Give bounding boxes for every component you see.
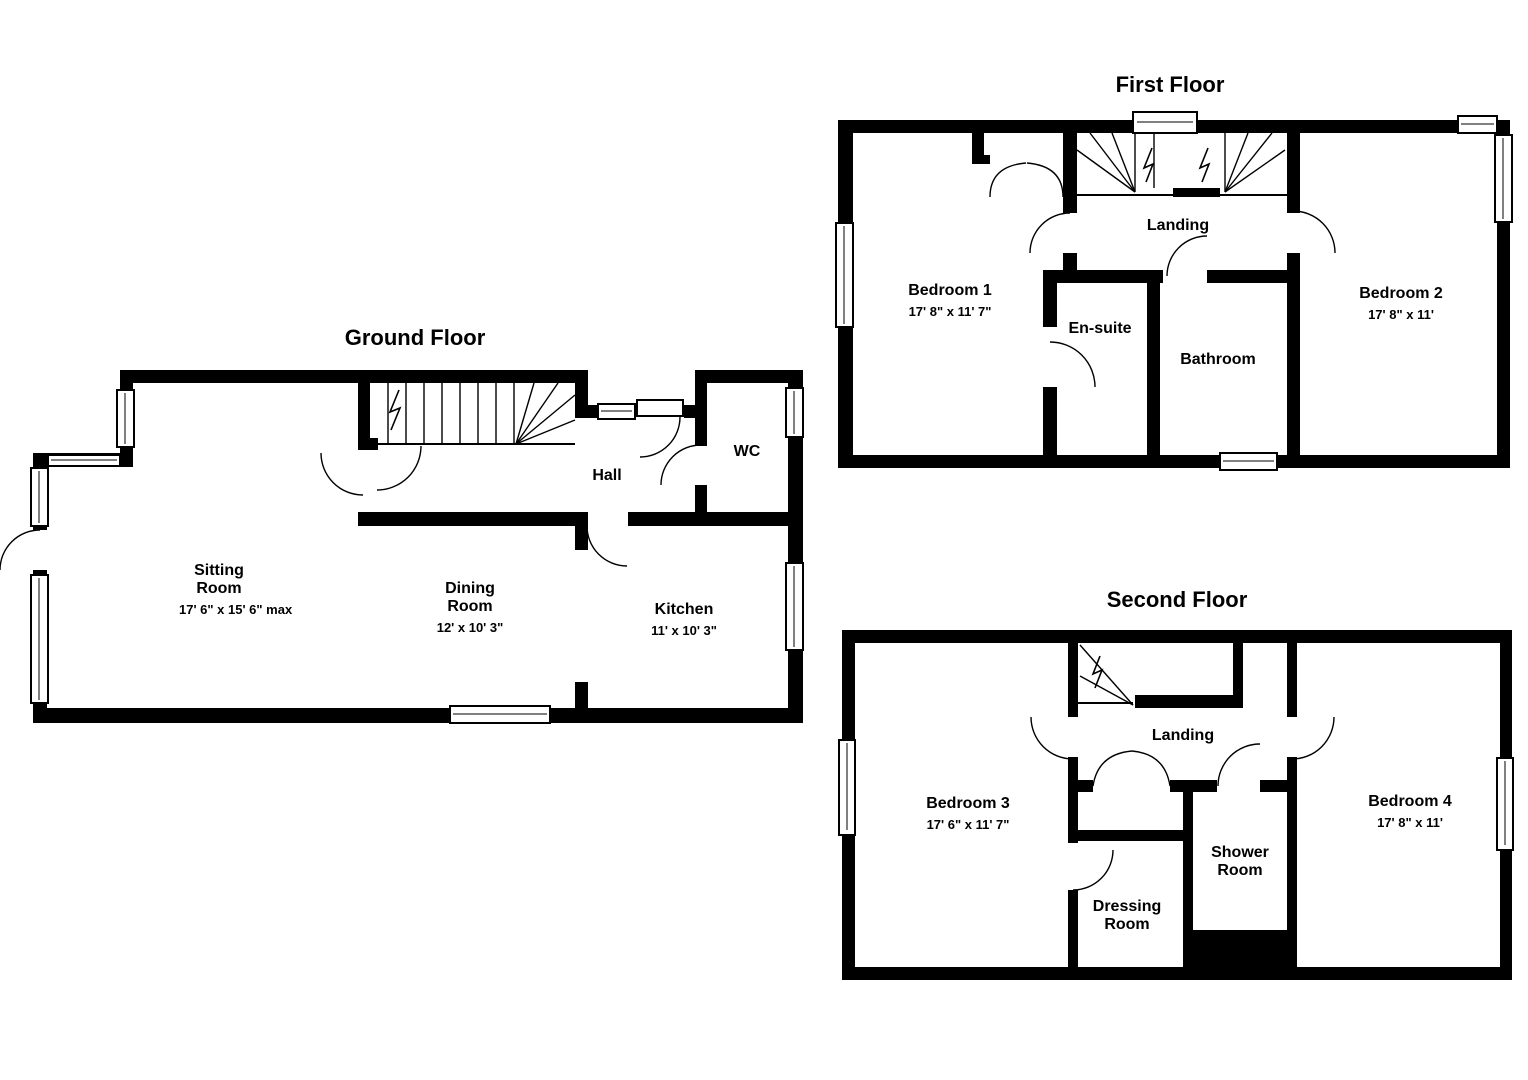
chimney-block: [1190, 930, 1297, 980]
window-icon: [31, 575, 48, 703]
door-arc-garden: [0, 530, 40, 570]
door-arc-kitchen: [587, 526, 627, 566]
room-label-shower-room: Shower Room: [1200, 844, 1280, 880]
floorplan-graphics: [0, 0, 1528, 1080]
ground-walls: [33, 370, 803, 723]
front-door-leaf: [637, 400, 683, 416]
window-icon: [1495, 135, 1512, 222]
room-label-sitting-room: Sitting Room 17' 6" x 15' 6" max: [179, 562, 259, 617]
room-label-bedroom-3: Bedroom 3 17' 6" x 11' 7": [926, 795, 1010, 832]
room-label-bedroom-2: Bedroom 2 17' 8" x 11': [1359, 285, 1443, 322]
door-arc-sitting-room: [321, 453, 363, 495]
stair-direction-arrow: [1200, 148, 1209, 182]
door-arc-dressing-room: [1073, 850, 1113, 890]
window-icon: [1458, 116, 1497, 133]
door-arc-closet-right: [1027, 163, 1063, 197]
door-arc-shower-room: [1218, 744, 1260, 786]
window-icon: [48, 455, 120, 466]
second-floor-title: Second Floor: [1107, 587, 1248, 613]
room-label-en-suite: En-suite: [1068, 320, 1131, 338]
window-icon: [836, 223, 853, 327]
ground-doors: [0, 400, 701, 570]
second-stairs: [1078, 645, 1133, 705]
window-icon: [450, 706, 550, 723]
door-arc-closet-left: [990, 163, 1026, 197]
room-label-bedroom-4: Bedroom 4 17' 8" x 11': [1368, 793, 1452, 830]
door-arc-wc: [661, 445, 701, 485]
room-label-dining-room: Dining Room 12' x 10' 3": [430, 580, 510, 635]
window-icon: [1220, 453, 1277, 470]
window-icon: [117, 390, 134, 447]
door-arc-bedroom-3: [1031, 717, 1073, 759]
ground-floor-title: Ground Floor: [345, 325, 486, 351]
room-label-wc: WC: [734, 443, 761, 461]
door-arc-front-door: [640, 417, 680, 457]
room-label-landing-second: Landing: [1152, 727, 1214, 745]
room-label-hall: Hall: [592, 467, 621, 485]
door-arc-bedroom-4: [1292, 717, 1334, 759]
room-label-bathroom: Bathroom: [1180, 351, 1256, 369]
ground-windows: [31, 388, 803, 723]
door-arc-bedroom-1: [1030, 213, 1070, 253]
window-icon: [786, 563, 803, 650]
first-stairs: [1077, 133, 1287, 195]
room-label-landing-first: Landing: [1147, 217, 1209, 235]
first-floor-title: First Floor: [1116, 72, 1225, 98]
window-icon: [1133, 112, 1197, 133]
room-label-kitchen: Kitchen 11' x 10' 3": [651, 601, 717, 638]
ground-floor-plan: [0, 370, 803, 723]
stair-direction-arrow: [1144, 148, 1153, 182]
ground-stairs: [370, 383, 575, 444]
room-label-bedroom-1: Bedroom 1 17' 8" x 11' 7": [908, 282, 992, 319]
door-arc-stairs: [377, 446, 421, 490]
stair-direction-arrow: [390, 390, 400, 430]
window-icon: [786, 388, 803, 437]
room-label-dressing-room: Dressing Room: [1077, 898, 1177, 934]
door-arc-bedroom-2: [1293, 211, 1335, 253]
window-icon: [1497, 758, 1513, 850]
window-icon: [31, 468, 48, 526]
window-icon: [598, 404, 635, 419]
window-icon: [839, 740, 855, 835]
floorplan-page: Ground Floor Sitting Room 17' 6" x 15' 6…: [0, 0, 1528, 1080]
